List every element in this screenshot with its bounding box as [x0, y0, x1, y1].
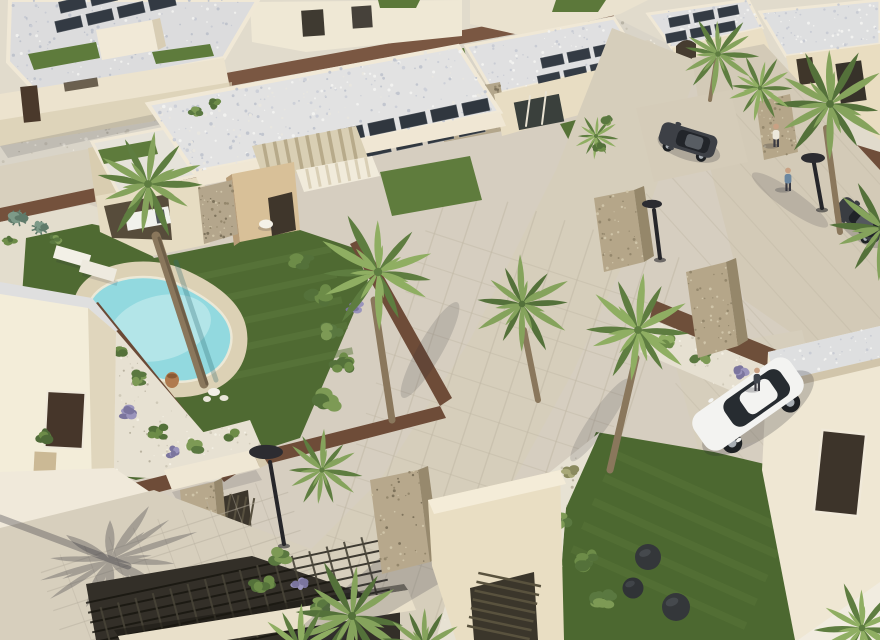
- garden-table: [208, 388, 220, 396]
- back-row-window: [351, 5, 372, 28]
- garden-chair: [203, 396, 211, 402]
- garden-chair: [220, 395, 229, 401]
- garden-ottoman: [662, 593, 690, 621]
- garden-ottoman: [623, 578, 644, 599]
- villa-br-window: [814, 430, 866, 516]
- terracotta-pot-rim: [167, 374, 177, 379]
- back-hedge: [552, 0, 606, 12]
- villa-bl-wall-shade: [88, 308, 116, 486]
- back-hedge: [378, 0, 420, 8]
- render-canvas: Aerial 3D architectural render of a mode…: [0, 0, 880, 640]
- garden-ottoman: [635, 544, 661, 570]
- entry-table: [259, 220, 273, 229]
- villa-development-render: Aerial 3D architectural render of a mode…: [0, 0, 880, 640]
- back-row-window: [301, 9, 325, 36]
